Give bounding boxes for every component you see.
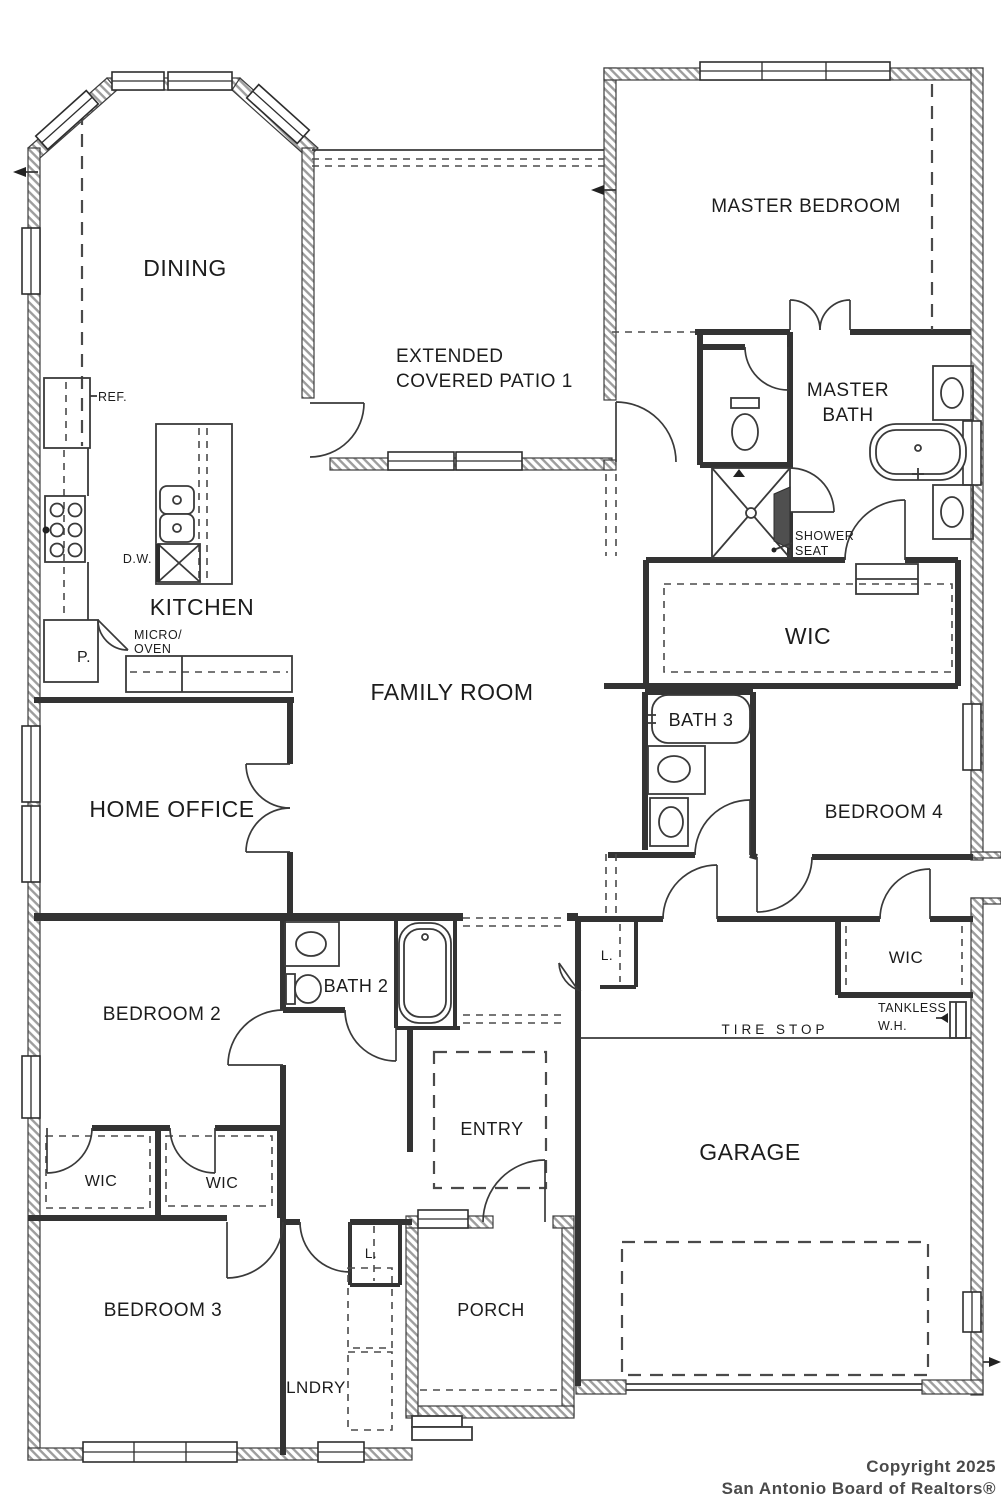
window	[112, 72, 164, 90]
label-linen-laundry: L.	[365, 1246, 377, 1261]
door-swing	[745, 347, 788, 390]
shower	[712, 468, 792, 558]
room-label-dining: DINING	[143, 255, 227, 281]
label-tankless-line2: W.H.	[878, 1019, 907, 1033]
door-swing	[757, 857, 812, 912]
door-swing	[880, 869, 930, 919]
door-swing	[228, 1010, 283, 1065]
direction-arrow	[983, 1357, 1001, 1367]
garage-door-opening	[626, 1384, 922, 1390]
door-swing	[345, 1010, 396, 1061]
room-label-wic-left: WIC	[85, 1173, 118, 1190]
door-swing	[695, 800, 750, 855]
label-pantry: P.	[77, 649, 91, 666]
door-swing	[170, 1128, 215, 1173]
room-label-garage: GARAGE	[699, 1139, 800, 1165]
label-shower-seat-line2: SEAT	[795, 544, 829, 558]
room-label-bath2: BATH 2	[324, 976, 389, 996]
room-label-wic-right: WIC	[206, 1175, 239, 1192]
room-label-bedroom2: BEDROOM 2	[103, 1004, 222, 1025]
door-swing	[98, 620, 128, 650]
window	[247, 85, 310, 144]
room-label-master-bath-line2: BATH	[822, 405, 873, 426]
room-label-master-bath-line1: MASTER	[807, 380, 889, 401]
room-label-bedroom4: BEDROOM 4	[825, 802, 944, 823]
window	[22, 228, 40, 294]
room-label-laundry: LNDRY	[286, 1378, 346, 1397]
door-swing	[790, 300, 820, 330]
window	[22, 726, 40, 802]
room-label-family-room: FAMILY ROOM	[370, 679, 533, 705]
room-label-wic-bedroom4: WIC	[889, 948, 924, 967]
window	[388, 452, 454, 470]
sink-bath3	[648, 746, 705, 794]
washer-dryer	[348, 1268, 392, 1430]
window	[318, 1442, 364, 1462]
room-label-master-bedroom: MASTER BEDROOM	[711, 196, 901, 217]
toilet-bath3	[650, 798, 688, 846]
label-linen-hall: L.	[601, 948, 613, 963]
room-label-bath3: BATH 3	[669, 710, 734, 730]
vanity-sink	[933, 366, 973, 420]
room-label-entry: ENTRY	[460, 1119, 523, 1139]
window	[168, 72, 232, 90]
window	[963, 704, 981, 770]
wic-bench	[856, 564, 918, 594]
toilet-bath2	[286, 974, 321, 1004]
door-swing	[483, 1160, 545, 1222]
door-swing	[616, 402, 676, 462]
room-label-home-office: HOME OFFICE	[89, 796, 254, 822]
sink-bath2	[285, 922, 339, 966]
label-tire-stop: TIRE STOP	[721, 1022, 828, 1037]
window	[963, 1292, 981, 1332]
label-micro-line1: MICRO/	[134, 628, 182, 642]
door-swing	[227, 1222, 283, 1278]
window	[456, 452, 522, 470]
window	[36, 91, 99, 150]
window	[83, 1442, 237, 1462]
copyright-line1: Copyright 2025	[866, 1457, 996, 1476]
room-label-kitchen: KITCHEN	[150, 594, 254, 620]
room-label-patio-line2: COVERED PATIO 1	[396, 371, 573, 392]
window	[700, 62, 890, 80]
door-swing	[47, 1128, 92, 1173]
label-shower-seat-line1: SHOWER	[795, 529, 854, 543]
door-swing	[300, 1222, 350, 1272]
kitchen-island	[156, 424, 232, 584]
porch-steps	[412, 1416, 472, 1440]
floor-plan-canvas: DINING EXTENDED COVERED PATIO 1 MASTER B…	[0, 0, 1001, 1500]
window	[418, 1210, 468, 1228]
toilet	[731, 398, 759, 450]
bathtub-master	[870, 424, 966, 480]
door-swing	[790, 468, 834, 512]
room-label-wic-master: WIC	[785, 623, 831, 649]
room-label-patio-line1: EXTENDED	[396, 346, 503, 367]
label-refrigerator: REF.	[98, 390, 127, 404]
door-swing	[663, 865, 717, 919]
door-swing	[310, 403, 364, 457]
floor-plan-page: DINING EXTENDED COVERED PATIO 1 MASTER B…	[0, 0, 1001, 1500]
label-dishwasher: D.W.	[123, 552, 152, 566]
vanity-sink	[933, 485, 973, 539]
refrigerator	[44, 378, 97, 448]
door-swing	[820, 300, 850, 330]
window	[22, 806, 40, 882]
bathtub-bath2	[399, 923, 451, 1023]
room-label-porch: PORCH	[457, 1300, 525, 1320]
window	[22, 1056, 40, 1118]
room-label-bedroom3: BEDROOM 3	[104, 1300, 223, 1321]
label-micro-line2: OVEN	[134, 642, 171, 656]
copyright-line2: San Antonio Board of Realtors®	[722, 1479, 996, 1498]
label-tankless-line1: TANKLESS	[878, 1001, 946, 1015]
